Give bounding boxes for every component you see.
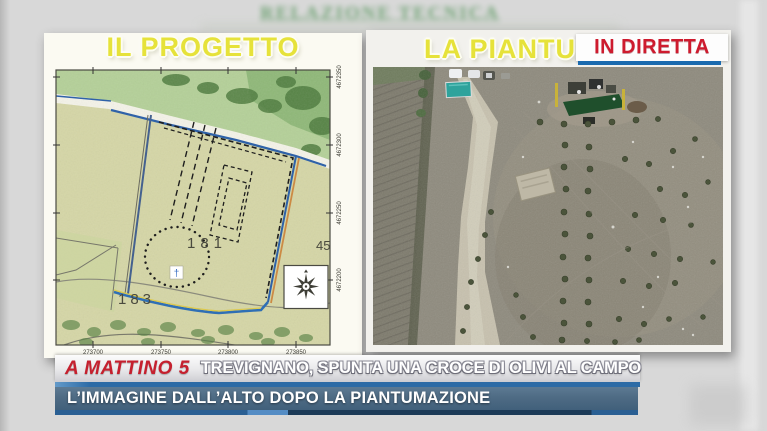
y-tick-label: 4672350 <box>337 65 343 89</box>
subheadline-text: L’IMMAGINE DALL’ALTO DOPO LA PIANTUMAZIO… <box>67 389 490 408</box>
project-map-panel: † 181 183 45 <box>44 33 362 358</box>
left-panel-title: IL PROGETTO <box>44 32 362 63</box>
background-right-strip <box>740 0 758 431</box>
y-tick-label: 4672250 <box>337 201 343 225</box>
blurred-document-blob <box>690 385 746 425</box>
live-badge-label: IN DIRETTA <box>594 36 710 59</box>
y-tick-label: 4672300 <box>337 133 343 157</box>
teal-tarp <box>446 81 472 97</box>
parcel-label-45: 45 <box>316 238 330 253</box>
project-map: † 181 183 45 <box>44 33 362 358</box>
parcel-label-181: 181 <box>187 235 227 252</box>
headline-text: TREVIGNANO, SPUNTA UNA CROCE DI OLIVI AL… <box>201 359 641 378</box>
tv-frame: RELAZIONE TECNICA <box>0 0 767 431</box>
aerial-photo <box>366 30 731 352</box>
lower-third-subheadline-banner: L’IMMAGINE DALL’ALTO DOPO LA PIANTUMAZIO… <box>55 387 638 410</box>
drone-photo <box>373 67 731 352</box>
cross-symbol: † <box>174 269 180 280</box>
y-tick-label: 4672200 <box>337 268 343 292</box>
parcel-label-183: 183 <box>118 291 155 308</box>
live-badge: IN DIRETTA <box>576 34 728 61</box>
show-brand: A MATTINO 5 <box>65 358 190 380</box>
background-left-edge <box>0 0 10 431</box>
banner-bottom-strip <box>55 410 638 415</box>
lower-third-headline-banner: A MATTINO 5 TREVIGNANO, SPUNTA UNA CROCE… <box>55 355 640 382</box>
live-badge-underline <box>578 61 721 65</box>
aerial-photo-panel <box>366 30 731 352</box>
blurred-document-title: RELAZIONE TECNICA <box>200 3 560 25</box>
compass-rose-icon <box>284 266 328 309</box>
